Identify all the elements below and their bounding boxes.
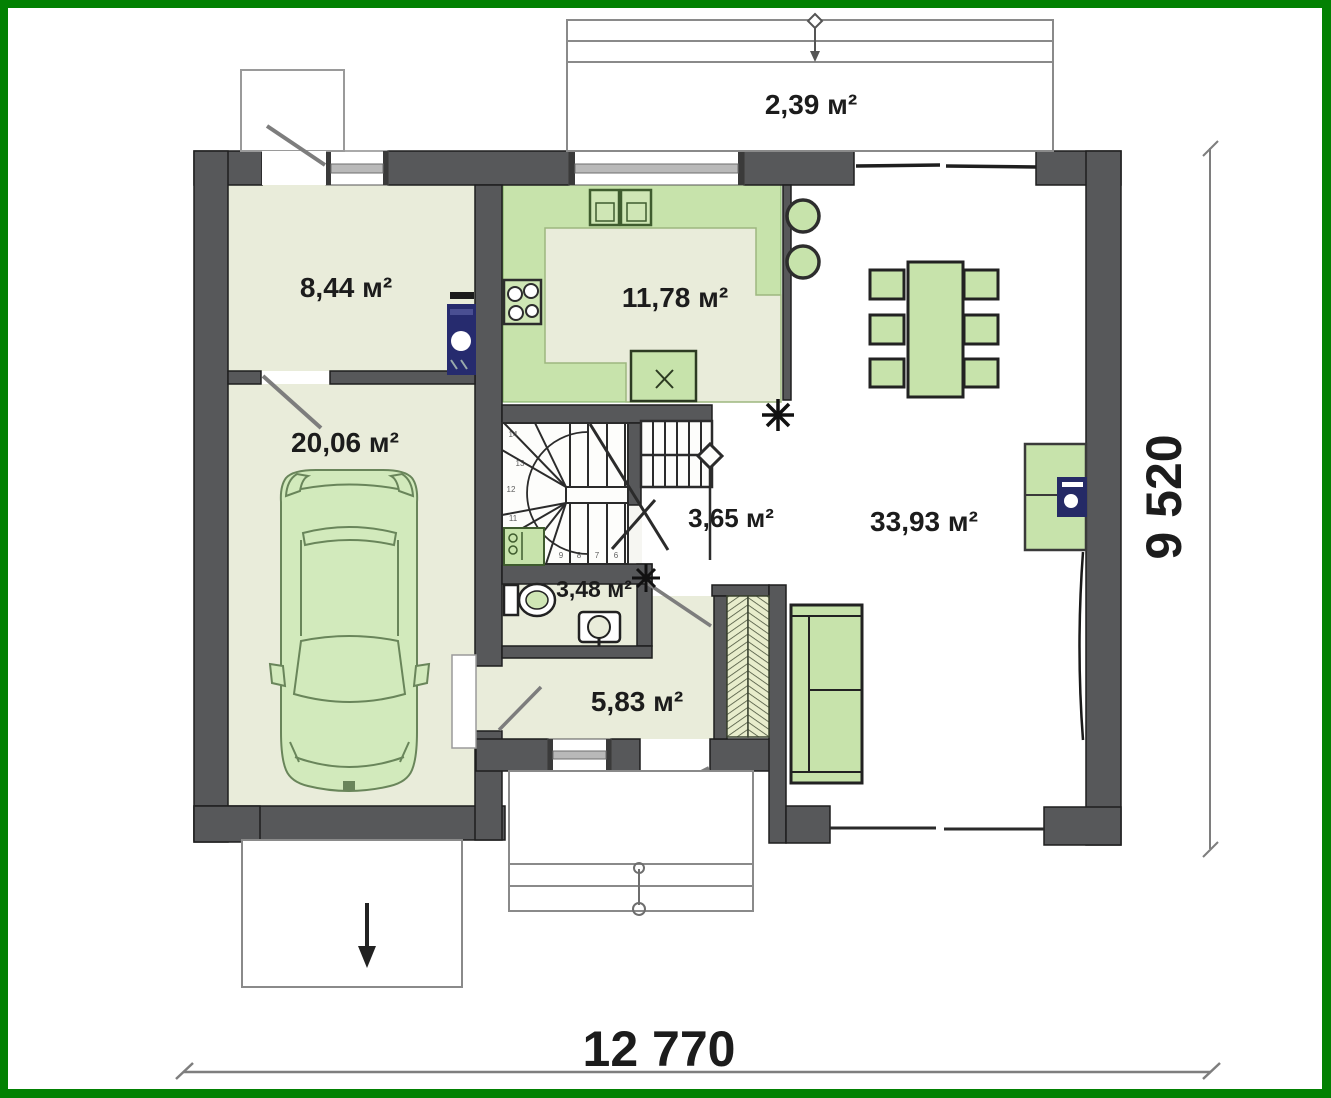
svg-text:5,83 м²: 5,83 м² <box>591 686 683 717</box>
svg-text:11,78 м²: 11,78 м² <box>622 282 728 313</box>
svg-text:13: 13 <box>516 459 525 468</box>
svg-text:20,06 м²: 20,06 м² <box>291 427 399 458</box>
svg-text:7: 7 <box>595 551 600 560</box>
svg-text:8: 8 <box>577 551 582 560</box>
svg-text:9: 9 <box>559 551 564 560</box>
svg-text:2,39 м²: 2,39 м² <box>765 89 857 120</box>
svg-text:11: 11 <box>509 514 518 523</box>
svg-text:14: 14 <box>509 430 518 439</box>
svg-text:33,93 м²: 33,93 м² <box>870 506 978 537</box>
svg-text:3,48 м²: 3,48 м² <box>556 576 632 602</box>
svg-text:6: 6 <box>614 551 619 560</box>
svg-text:8,44 м²: 8,44 м² <box>300 272 392 303</box>
svg-text:12: 12 <box>507 485 516 494</box>
svg-text:9 520: 9 520 <box>1136 434 1192 559</box>
svg-text:12 770: 12 770 <box>583 1021 736 1077</box>
svg-text:3,65 м²: 3,65 м² <box>688 503 774 533</box>
